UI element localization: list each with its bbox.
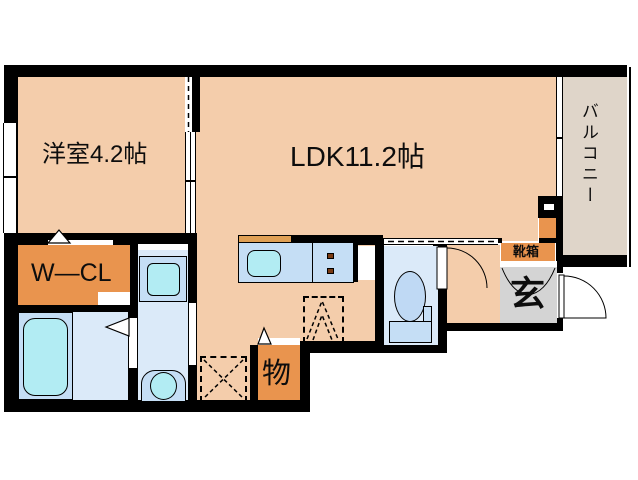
washing-machine-pan-inner [147, 263, 180, 296]
bathtub [23, 318, 68, 396]
door-gap-storage [258, 338, 300, 345]
partition-center-line [190, 132, 191, 233]
partition-tick [185, 180, 196, 182]
balcony-label: バルコニー [579, 102, 597, 207]
overhead-cabinet-strip [384, 238, 498, 245]
balcony-railing-line [629, 67, 631, 267]
kitchen-divider [312, 242, 313, 283]
kitchen-sink [247, 250, 281, 277]
toilet-bowl [394, 271, 426, 322]
storage-label: 物 [262, 359, 291, 389]
partition-sliding-slot [185, 77, 192, 132]
ldk-label: LDK11.2帖 [290, 142, 425, 171]
water-heater-mark [544, 204, 554, 210]
wall-top [6, 65, 627, 77]
ih-burner-1 [327, 253, 334, 259]
kitchen-counter-edge [238, 235, 292, 243]
wall-balcony-bottom [556, 255, 627, 267]
shoebox-label: 靴箱 [513, 245, 539, 259]
wall-hall-bottom [441, 323, 563, 331]
wall-toilet-right [438, 245, 447, 353]
equipment-space [200, 356, 247, 402]
wall-toilet-left [375, 238, 384, 353]
door-gap-washroom [189, 303, 196, 365]
ih-burner-2 [327, 268, 334, 274]
window-west-tick [3, 176, 18, 178]
refrigerator-space [303, 296, 344, 343]
door-gap-bath [129, 318, 137, 368]
wcl-label: W—CL [31, 260, 112, 286]
shoe-cabinet-column [539, 218, 556, 238]
kitchen-side-slot [358, 246, 375, 280]
wall-storage-right [300, 345, 310, 412]
vanity-basin [150, 372, 177, 400]
front-door-arc [564, 276, 606, 318]
toilet-flush-unit [423, 306, 432, 322]
wall-wcl-washroom [130, 245, 138, 305]
window-balcony-tick [556, 137, 563, 139]
western-room-label: 洋室4.2帖 [42, 142, 147, 167]
wall-hall-storage [250, 345, 258, 412]
door-gap-front [556, 273, 563, 318]
window-west [3, 123, 18, 233]
wcl-notch [98, 292, 130, 305]
wall-toilet-bottom [375, 345, 447, 353]
floorplan-canvas: 洋室4.2帖 LDK11.2帖 バルコニー W—CL 物 玄 靴箱 [0, 0, 638, 480]
entrance-label: 玄 [510, 277, 545, 314]
ldk-floor-upper [196, 77, 556, 196]
wall-partition-black [192, 77, 200, 132]
wall-wcl-bottom [4, 305, 138, 312]
hallway-floor [447, 245, 500, 323]
toilet-tank [389, 321, 432, 343]
